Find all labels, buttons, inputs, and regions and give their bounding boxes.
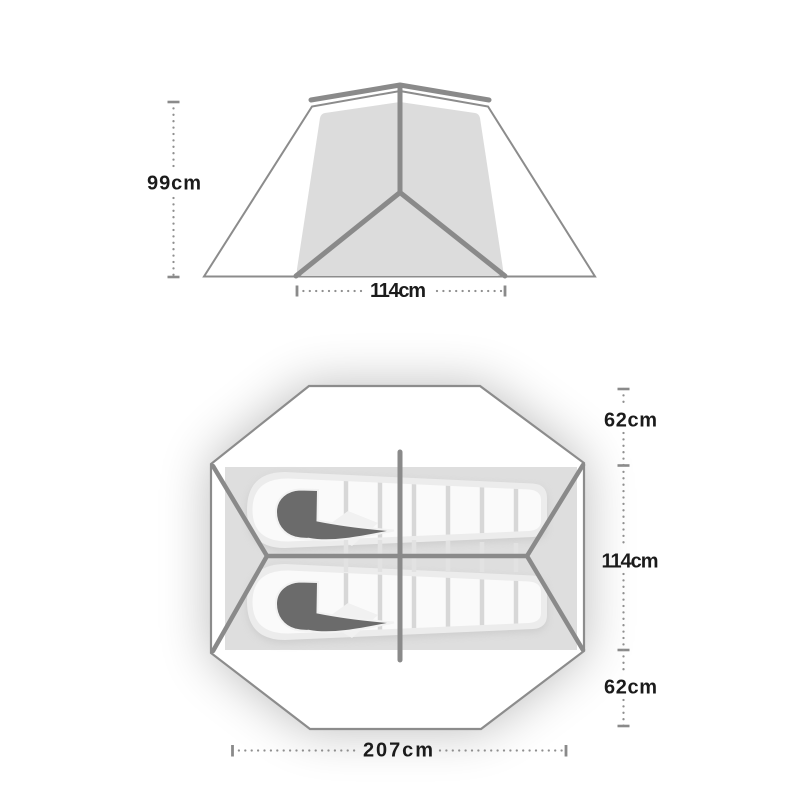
svg-text:62cm: 62cm (604, 410, 657, 432)
svg-text:99cm: 99cm (147, 173, 201, 195)
svg-text:62cm: 62cm (604, 677, 657, 699)
svg-text:207cm: 207cm (363, 740, 433, 762)
svg-text:114cm: 114cm (370, 280, 426, 302)
svg-text:114cm: 114cm (602, 551, 659, 573)
